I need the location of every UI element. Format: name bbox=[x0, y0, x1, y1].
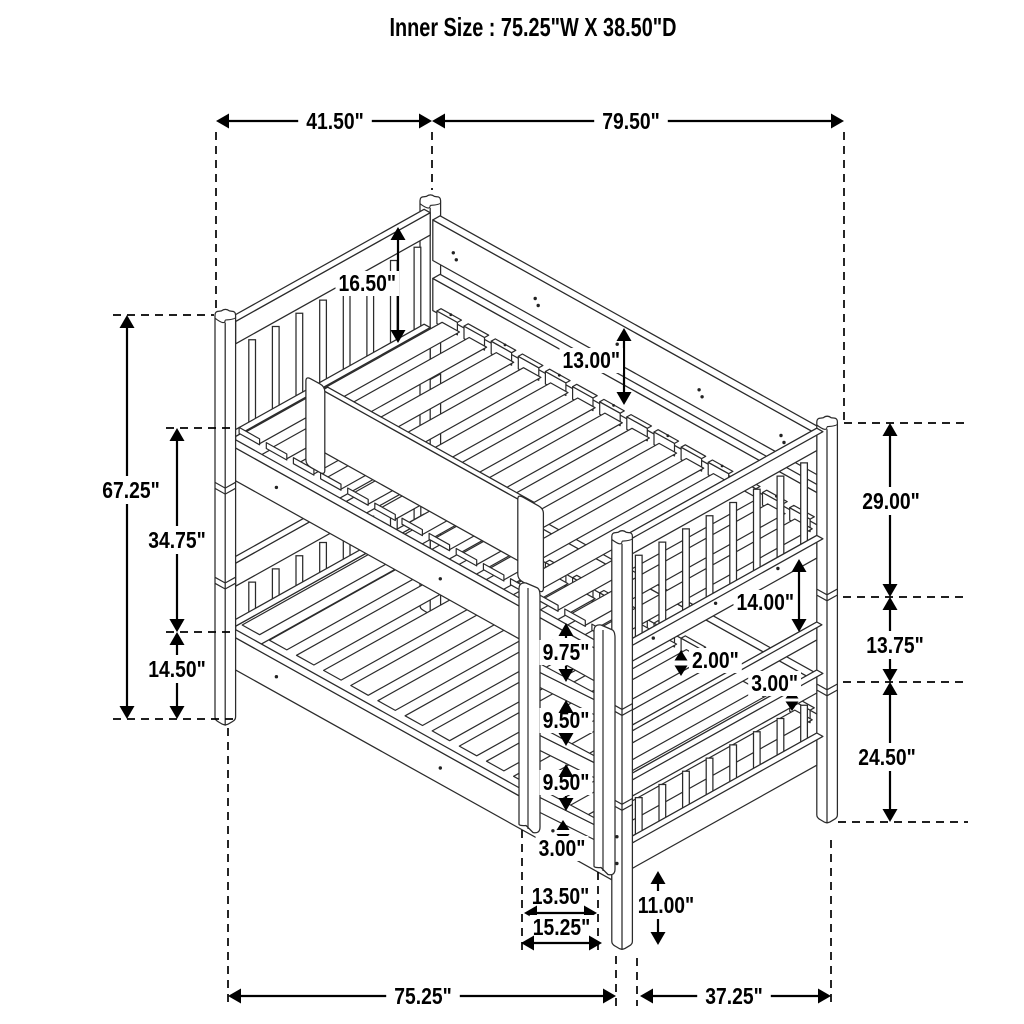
svg-text:79.50": 79.50" bbox=[602, 108, 660, 134]
svg-text:67.25": 67.25" bbox=[102, 477, 160, 503]
svg-text:13.75": 13.75" bbox=[866, 632, 924, 658]
svg-text:3.00": 3.00" bbox=[539, 835, 586, 861]
svg-text:13.00": 13.00" bbox=[563, 347, 621, 373]
svg-text:11.00": 11.00" bbox=[638, 892, 694, 918]
svg-text:15.25": 15.25" bbox=[533, 914, 591, 940]
svg-text:37.25": 37.25" bbox=[705, 983, 763, 1009]
svg-text:41.50": 41.50" bbox=[306, 108, 364, 134]
svg-text:2.00": 2.00" bbox=[692, 647, 739, 673]
svg-text:Inner Size : 75.25"W X 38.50": Inner Size : 75.25"W X 38.50"D bbox=[390, 12, 677, 42]
svg-text:75.25": 75.25" bbox=[394, 983, 452, 1009]
svg-text:34.75": 34.75" bbox=[148, 527, 206, 553]
svg-text:29.00": 29.00" bbox=[862, 488, 920, 514]
svg-text:24.50": 24.50" bbox=[858, 744, 916, 770]
svg-text:14.50": 14.50" bbox=[148, 656, 206, 682]
svg-text:3.00": 3.00" bbox=[751, 670, 798, 696]
svg-text:16.50": 16.50" bbox=[339, 270, 397, 296]
svg-text:13.50": 13.50" bbox=[532, 883, 590, 909]
svg-text:9.75": 9.75" bbox=[543, 639, 590, 665]
svg-text:14.00": 14.00" bbox=[737, 589, 795, 615]
